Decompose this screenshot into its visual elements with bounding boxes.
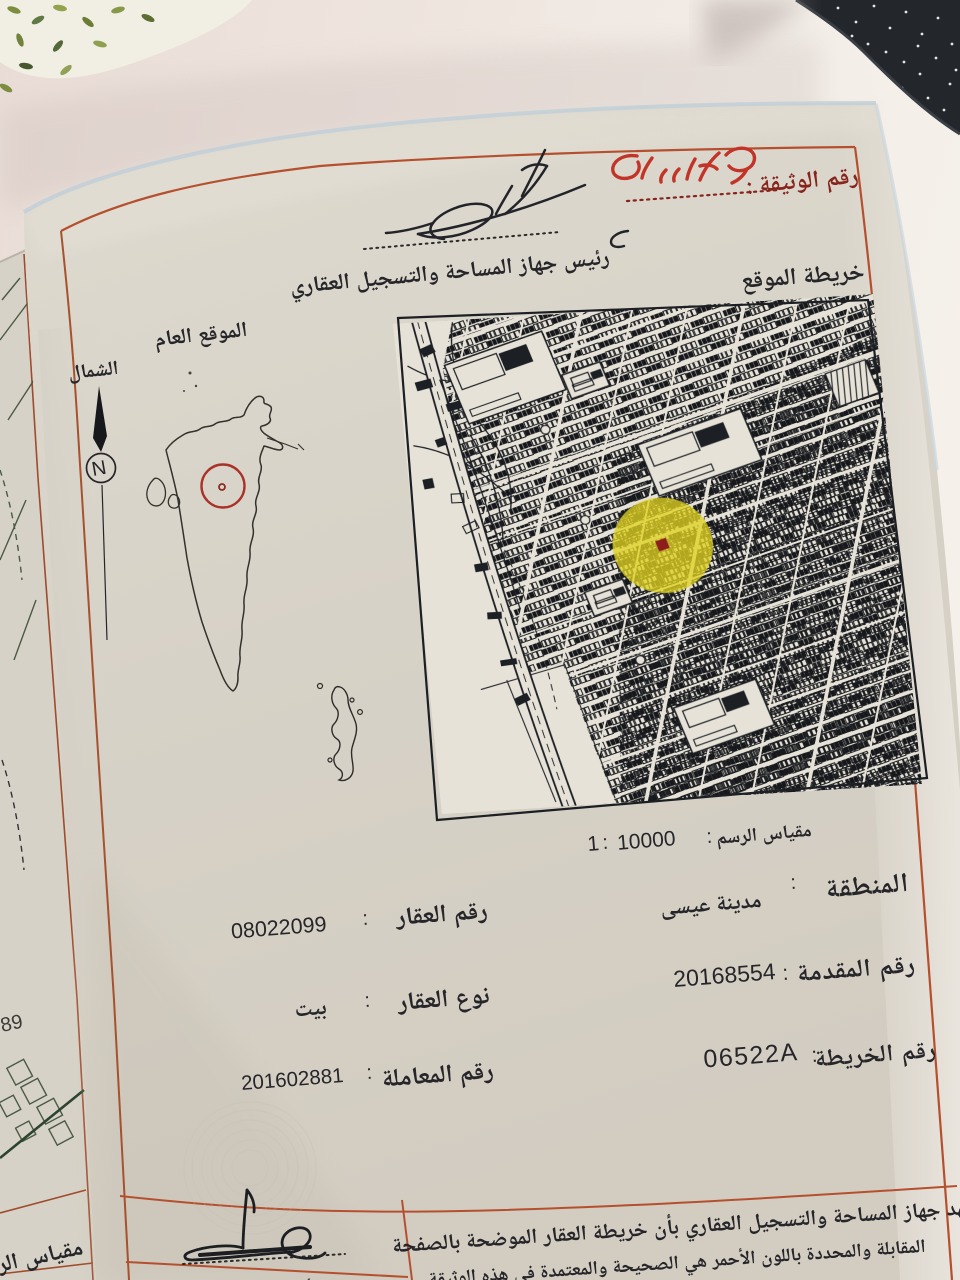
svg-text:1: 1 xyxy=(586,832,600,856)
svg-text:10000: 10000 xyxy=(616,827,676,855)
